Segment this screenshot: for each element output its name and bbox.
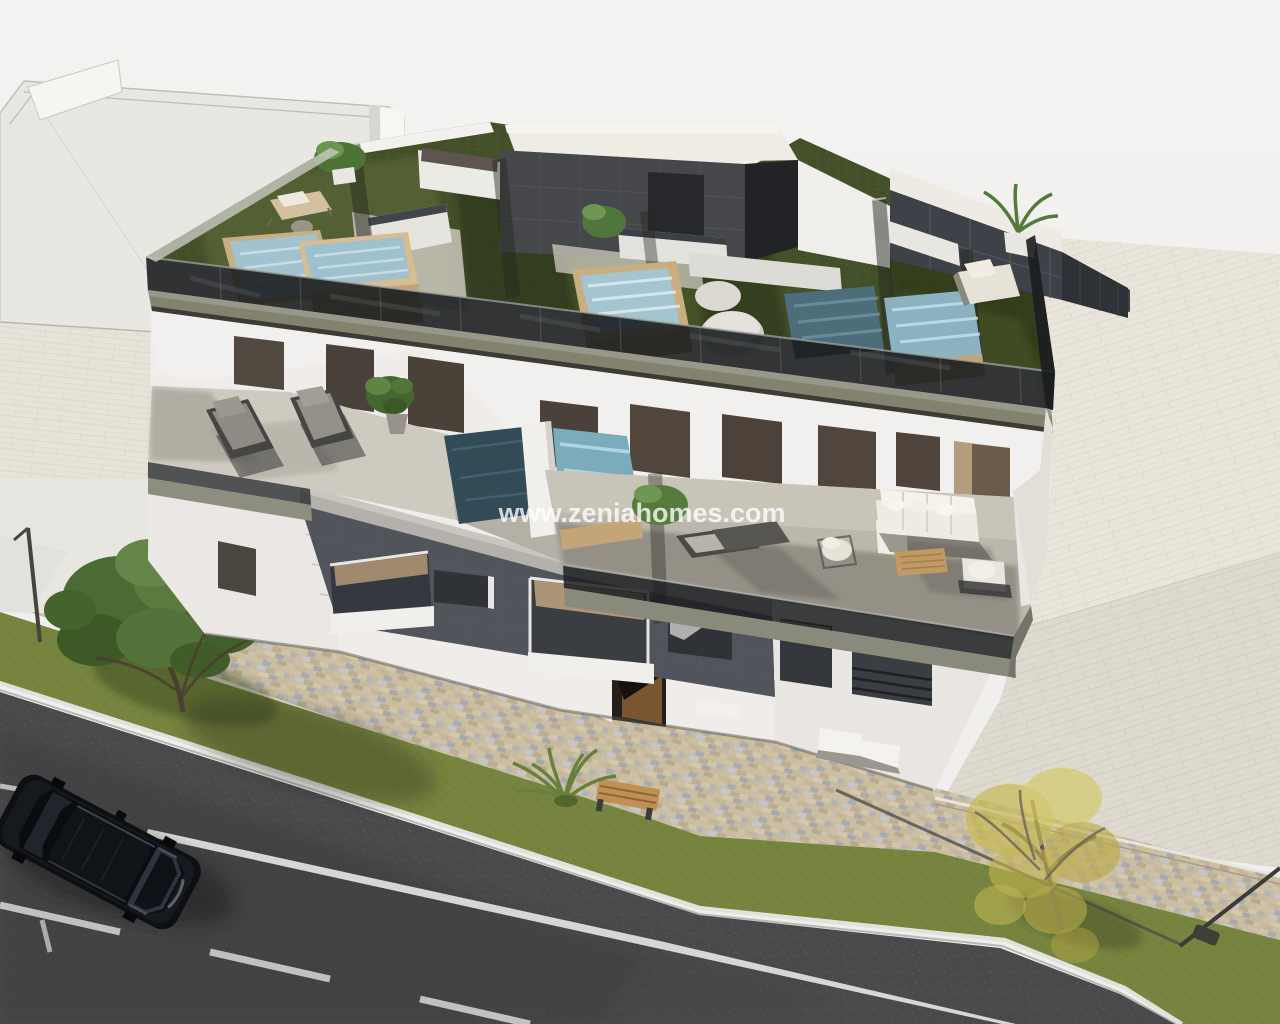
svg-text:www.zeniahomes.com: www.zeniahomes.com [497,498,785,528]
